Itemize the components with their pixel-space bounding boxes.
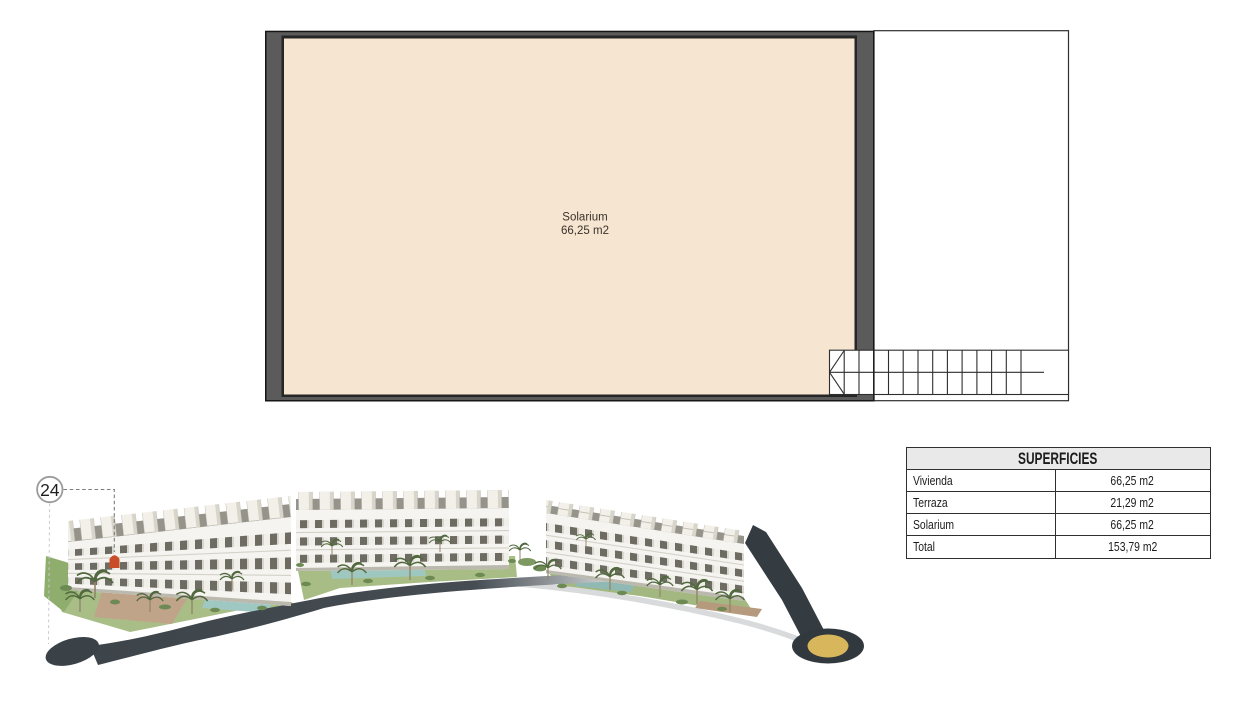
svg-text:24: 24 [40, 480, 60, 500]
svg-text:66,25 m2: 66,25 m2 [561, 225, 609, 237]
svg-text:Solarium: Solarium [562, 212, 607, 224]
